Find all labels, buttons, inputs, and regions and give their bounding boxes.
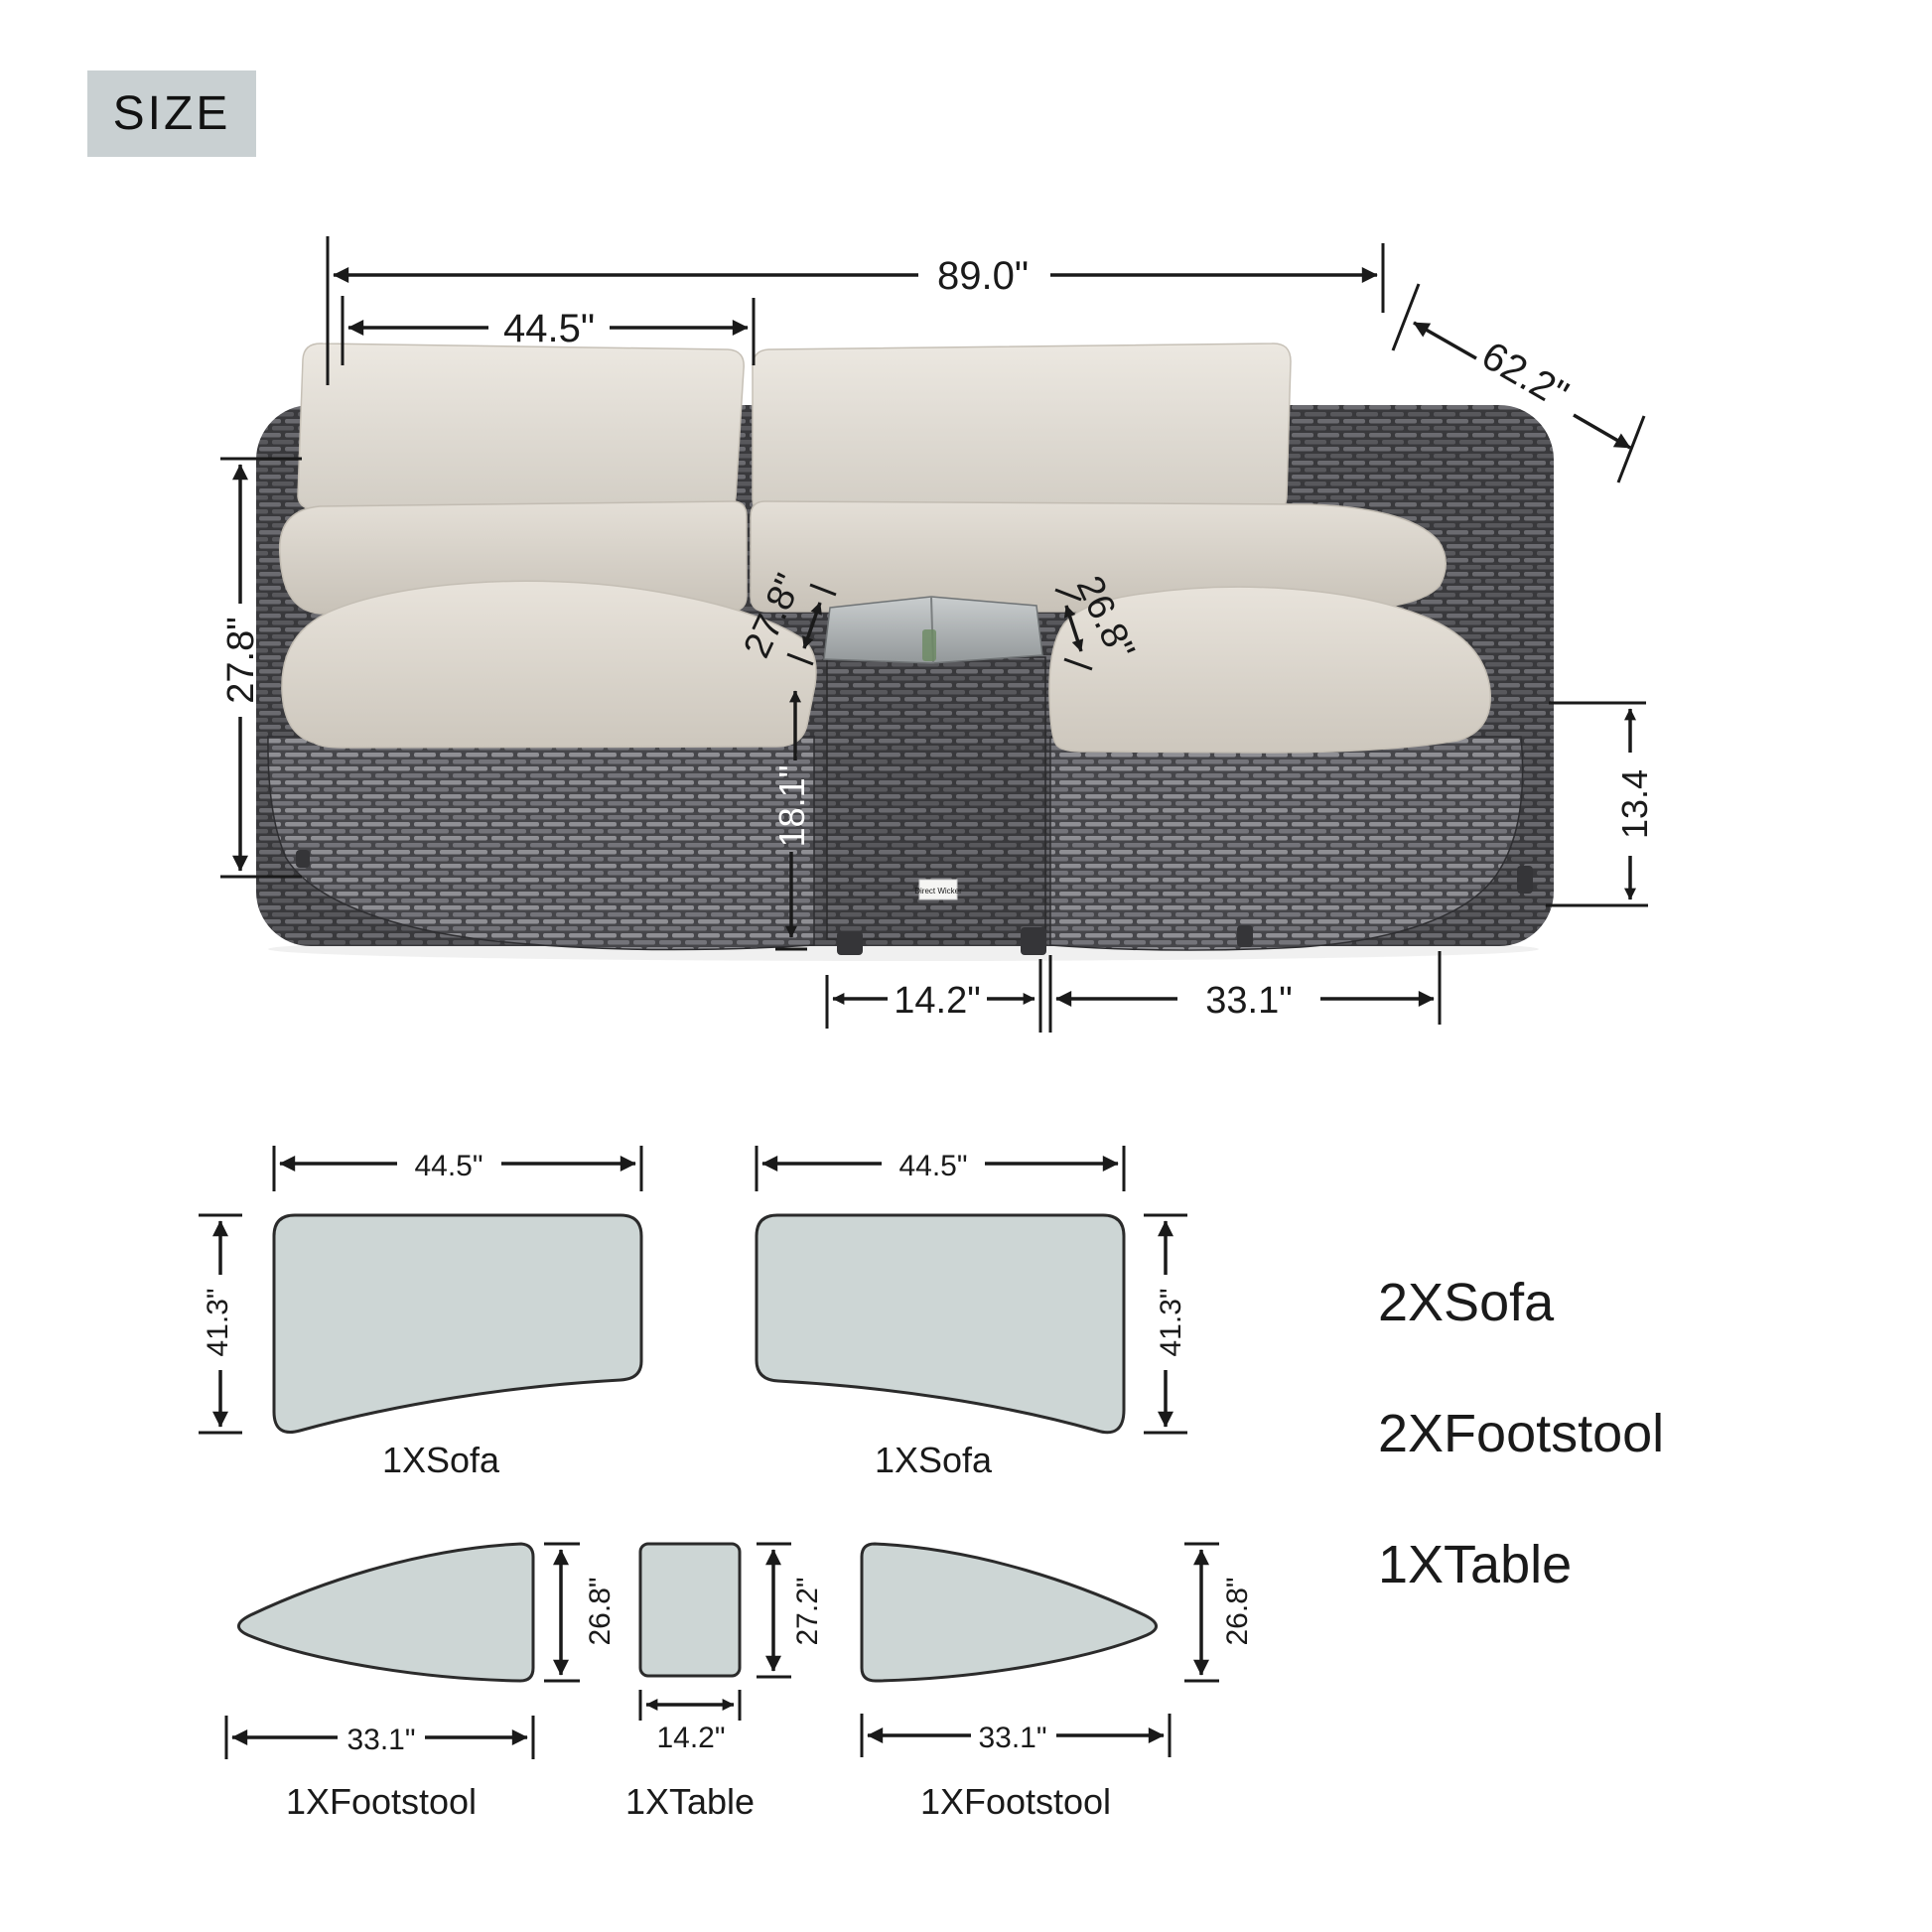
plan-footstool-left: 26.8" 33.1" 1XFootstool [226,1544,617,1822]
dim-text-sofa-width: 44.5" [503,307,595,350]
plan-sofa-left-label: 1XSofa [382,1440,500,1480]
plan-sofa-right-depth-dim: 41.3" [1144,1215,1187,1433]
plan-footstool-left-shape [238,1544,533,1681]
plan-table-width-dim: 14.2" [640,1690,740,1754]
plan-footstool-right-width: 33.1" [978,1722,1046,1754]
sofa-foot-left [296,850,310,868]
plan-table: 27.2" 14.2" 1XTable [625,1544,824,1822]
plan-sofa-left: 44.5" 41.3" 1XSofa [199,1146,641,1480]
plan-sofa-right-width: 44.5" [898,1150,967,1182]
size-diagram-page: SIZE [0,0,1932,1932]
back-cushion-right [753,344,1291,515]
plan-table-shape [640,1544,740,1676]
plan-sofa-left-width: 44.5" [414,1150,483,1182]
back-cushion-left [298,344,744,514]
brand-label: Direct Wicker [914,880,962,899]
plan-footstool-right-width-dim: 33.1" [862,1714,1170,1757]
plan-sofa-right-depth: 41.3" [1155,1288,1187,1356]
plan-sofa-right-label: 1XSofa [875,1440,993,1480]
parts-list: 2XSofa 2XFootstool 1XTable [1378,1273,1664,1594]
dim-footstool-width-photo: 33.1" [1050,951,1440,1033]
sofa-photo-illustration: Direct Wicker [256,344,1554,961]
diagram-canvas: Direct Wicker 89.0" 44.5" 62.2" [0,0,1932,1932]
plan-sofa-left-shape [274,1215,641,1432]
dim-table-width-photo: 14.2" [827,959,1040,1033]
plan-table-label: 1XTable [625,1781,755,1822]
dim-text-footstool-width: 33.1" [1205,980,1292,1022]
plan-sofa-left-depth: 41.3" [202,1288,234,1356]
plan-footstool-right-depth-dim: 26.8" [1184,1544,1254,1681]
plan-sofa-left-depth-dim: 41.3" [199,1215,242,1433]
footstool-foot-right [1237,925,1253,947]
plan-table-depth-dim: 27.2" [757,1544,824,1677]
brand-label-text: Direct Wicker [914,887,962,896]
parts-list-item-footstool: 2XFootstool [1378,1404,1664,1463]
dim-text-table-height: 18.1" [771,765,812,848]
glass-reflection [922,629,936,661]
plan-footstool-right-label: 1XFootstool [920,1781,1111,1822]
sofa-foot-right [1517,866,1533,894]
plan-footstool-left-label: 1XFootstool [286,1781,477,1822]
plan-footstool-left-width-dim: 33.1" [226,1716,533,1759]
plan-sofa-left-width-dim: 44.5" [274,1146,641,1191]
dim-text-back-height: 27.8" [220,617,262,703]
plan-sofa-right-width-dim: 44.5" [757,1146,1124,1191]
plan-sofa-right: 44.5" 41.3" 1XSofa [757,1146,1187,1480]
plan-footstool-left-depth: 26.8" [584,1577,617,1645]
plan-table-width: 14.2" [656,1722,725,1754]
dim-text-table-width: 14.2" [894,980,980,1022]
plan-footstool-left-width: 33.1" [346,1724,415,1756]
table-foot-left [837,931,863,955]
dim-text-overall-width: 89.0" [937,254,1029,298]
dim-text-diagonal-depth: 62.2" [1474,334,1576,417]
plan-sofa-right-shape [757,1215,1124,1433]
plan-table-depth: 27.2" [791,1577,824,1645]
plan-footstool-right-shape [862,1544,1157,1681]
parts-list-item-table: 1XTable [1378,1535,1572,1594]
plan-footstool-right: 26.8" 33.1" 1XFootstool [862,1544,1254,1822]
dim-text-footstool-height: 13.4 [1614,769,1655,839]
parts-list-item-sofa: 2XSofa [1378,1273,1555,1332]
table-foot-right [1021,927,1046,955]
dim-footstool-height: 13.4 [1546,703,1655,905]
plan-footstool-right-depth: 26.8" [1221,1577,1254,1645]
plan-footstool-left-depth-dim: 26.8" [544,1544,617,1681]
